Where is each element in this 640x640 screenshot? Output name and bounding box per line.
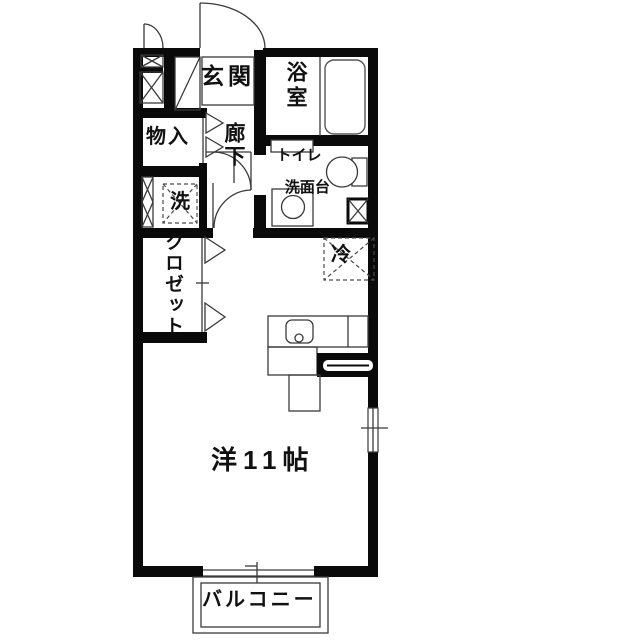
balcony-window <box>203 562 314 583</box>
main-room-label: 洋11帖 <box>211 447 315 474</box>
kitchen-hatch <box>317 353 378 377</box>
meter-box-door-arc <box>144 24 163 48</box>
bathtub <box>325 60 365 134</box>
closet-doors <box>196 237 225 332</box>
pipe-duct <box>142 177 153 227</box>
floorplan-canvas: 玄関 浴室 廊下 物入 洗 トイレ 洗面台 クロゼット 冷 洋11帖 バルコニー <box>0 0 640 640</box>
kitchen-return <box>289 375 320 411</box>
pipe-shaft-hatch <box>140 55 163 103</box>
toilet-vanity-label: トイレ 洗面台 <box>268 148 330 211</box>
side-window <box>361 408 388 452</box>
balcony-label: バルコニー <box>202 590 317 611</box>
refrigerator-label: 冷 <box>331 245 351 266</box>
pipe-space-box <box>348 199 368 223</box>
laundry-label: 洗 <box>170 192 190 213</box>
shoe-cabinet <box>175 57 200 110</box>
toilet <box>327 157 368 187</box>
storage-label: 物入 <box>146 127 190 148</box>
floorplan-drawing <box>0 0 640 640</box>
toilet-label-line2: 洗面台 <box>285 179 330 196</box>
bathroom-label: 浴室 <box>284 61 306 111</box>
entrance-door-arc <box>200 3 265 48</box>
entrance-label: 玄関 <box>201 64 255 88</box>
hallway-label: 廊下 <box>222 122 244 168</box>
kitchen-cabinet <box>268 347 317 375</box>
kitchen-counter <box>268 316 368 347</box>
kitchen-sink <box>286 320 313 343</box>
storage-doors <box>203 113 223 163</box>
closet-label: クロゼット <box>162 232 182 337</box>
